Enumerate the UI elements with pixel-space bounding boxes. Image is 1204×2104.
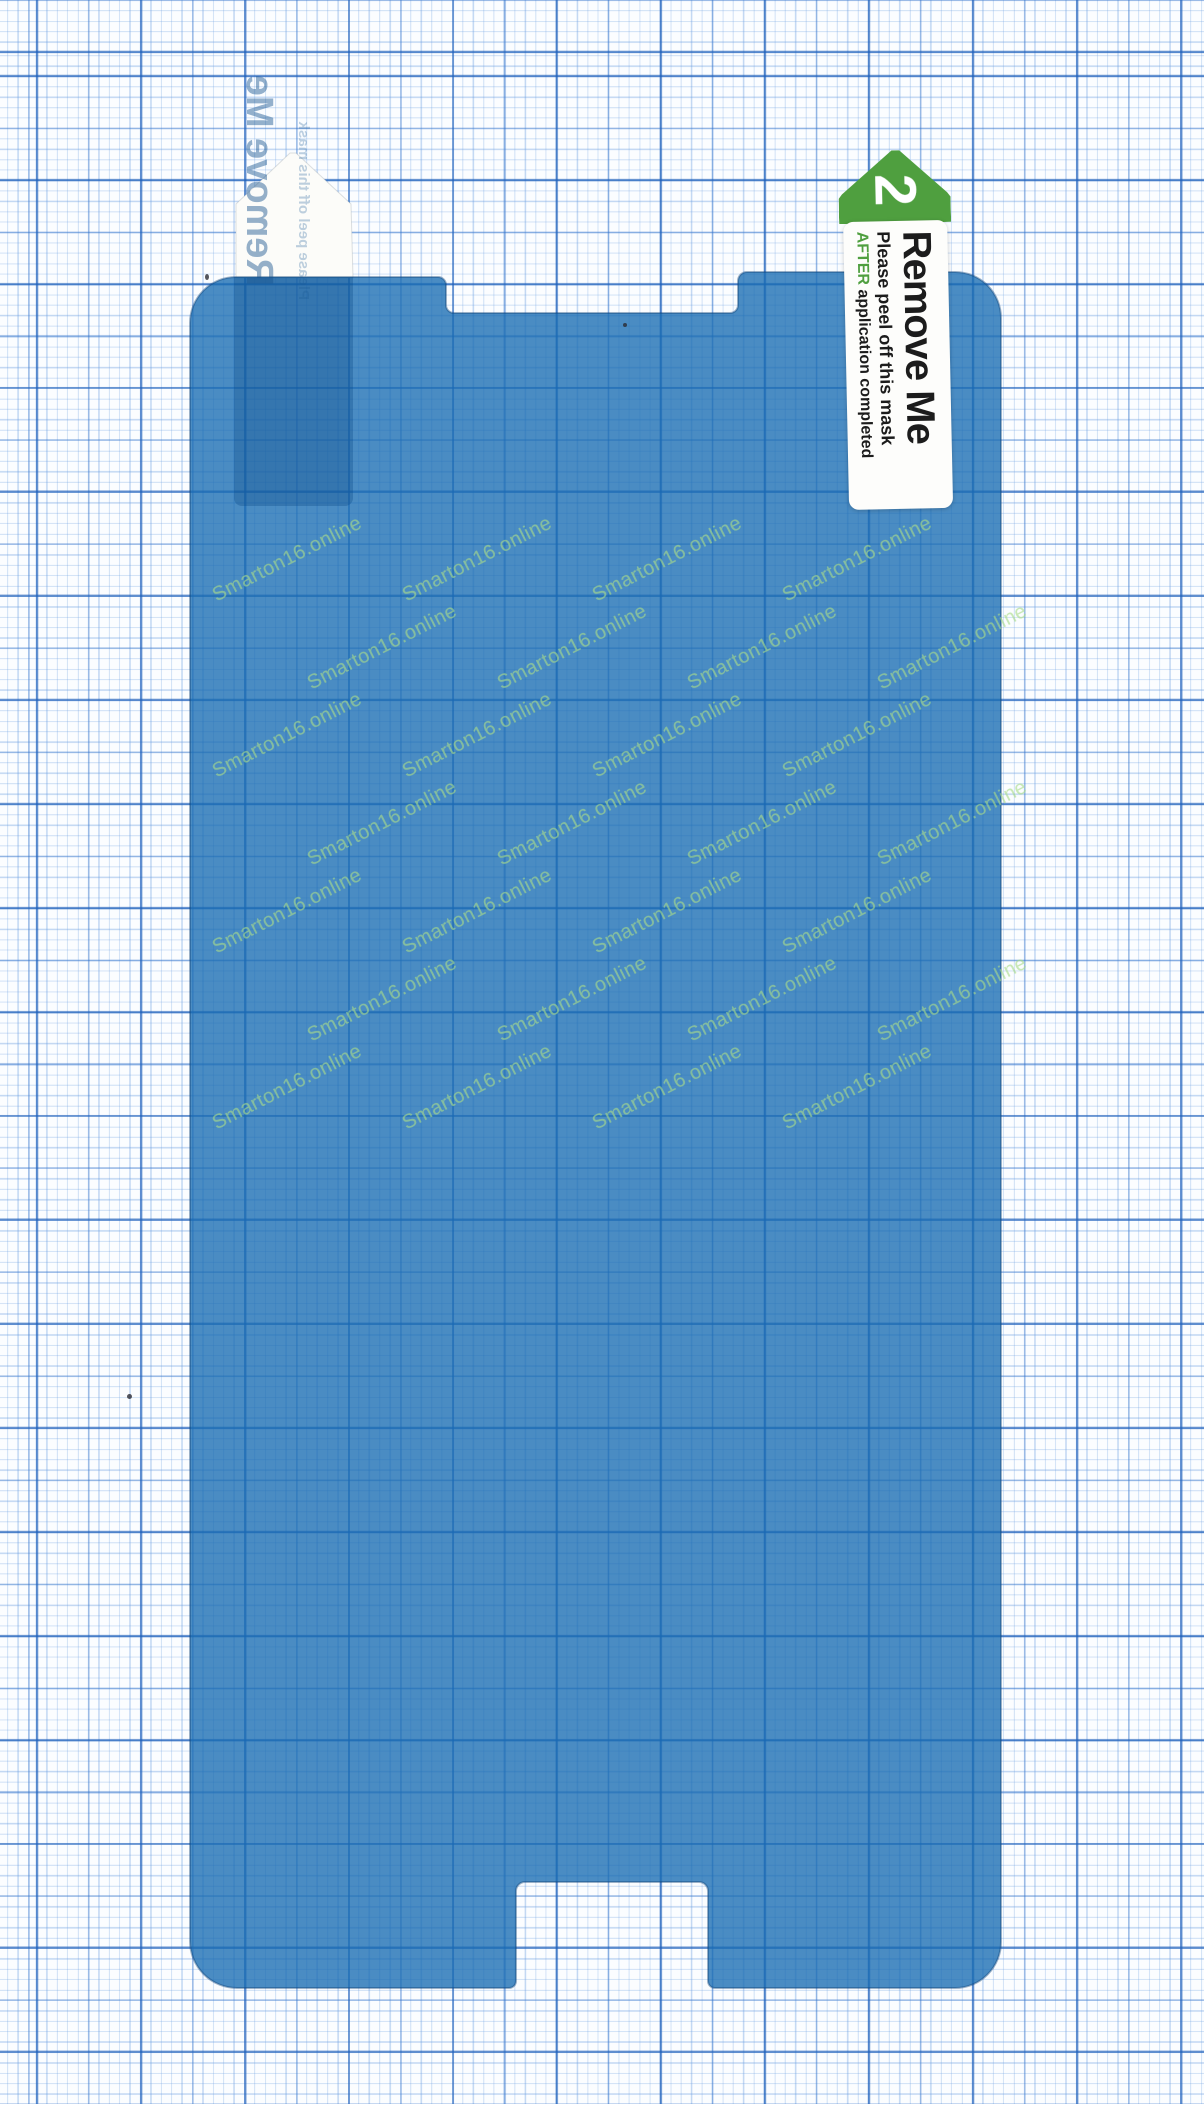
label-instruction-tail: application completed (855, 289, 876, 458)
dust-speck (623, 323, 627, 327)
label-after-word: AFTER (854, 231, 872, 285)
tab1-mirrored-line-wrap: Please peel off this mask (294, 300, 312, 500)
dust-speck (205, 274, 209, 280)
step2-peel-tab: 2 Remove Me Please peel off this mask AF… (838, 148, 958, 512)
label-title: Remove Me (895, 230, 943, 503)
dust-speck (127, 1394, 132, 1399)
step-number: 2 (865, 174, 924, 207)
protector-film (190, 272, 1001, 1988)
film-layer (0, 0, 1204, 2104)
step2-instruction-label: Remove Me Please peel off this mask AFTE… (843, 220, 953, 510)
tab1-mirrored-instruction: Please peel off this mask (295, 122, 312, 300)
tab1-mirrored-title: Remove Me (237, 75, 280, 286)
tab1-mirrored-text-wrap: Remove Me (236, 286, 280, 500)
step2-label-text: Remove Me Please peel off this mask AFTE… (843, 220, 947, 504)
step2-arrow-icon: 2 (838, 148, 952, 224)
